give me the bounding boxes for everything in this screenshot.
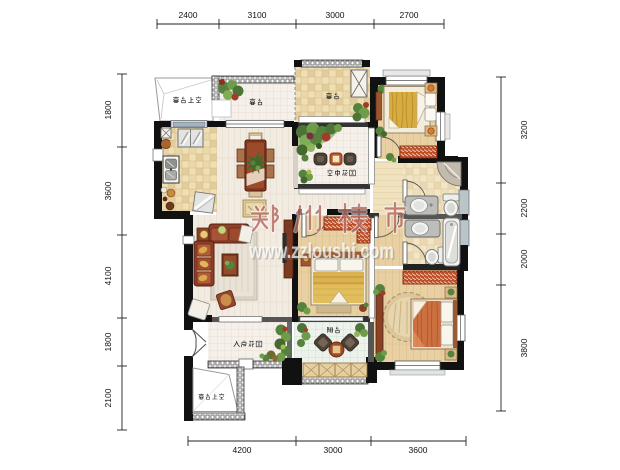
svg-text:2100: 2100 [103,388,113,407]
svg-text:3100: 3100 [248,10,267,20]
svg-text:3000: 3000 [326,10,345,20]
svg-text:2200: 2200 [519,198,529,217]
svg-text:4100: 4100 [103,266,113,285]
svg-text:3000: 3000 [324,445,343,455]
svg-text:www.zzloushi.com: www.zzloushi.com [248,239,394,263]
svg-text:2400: 2400 [179,10,198,20]
svg-text:2700: 2700 [400,10,419,20]
svg-text:3600: 3600 [103,181,113,200]
svg-text:1800: 1800 [103,332,113,351]
svg-text:2000: 2000 [519,249,529,268]
svg-text:1800: 1800 [103,100,113,119]
svg-text:3200: 3200 [519,120,529,139]
svg-text:3800: 3800 [519,338,529,357]
svg-text:4200: 4200 [233,445,252,455]
svg-text:3600: 3600 [409,445,428,455]
